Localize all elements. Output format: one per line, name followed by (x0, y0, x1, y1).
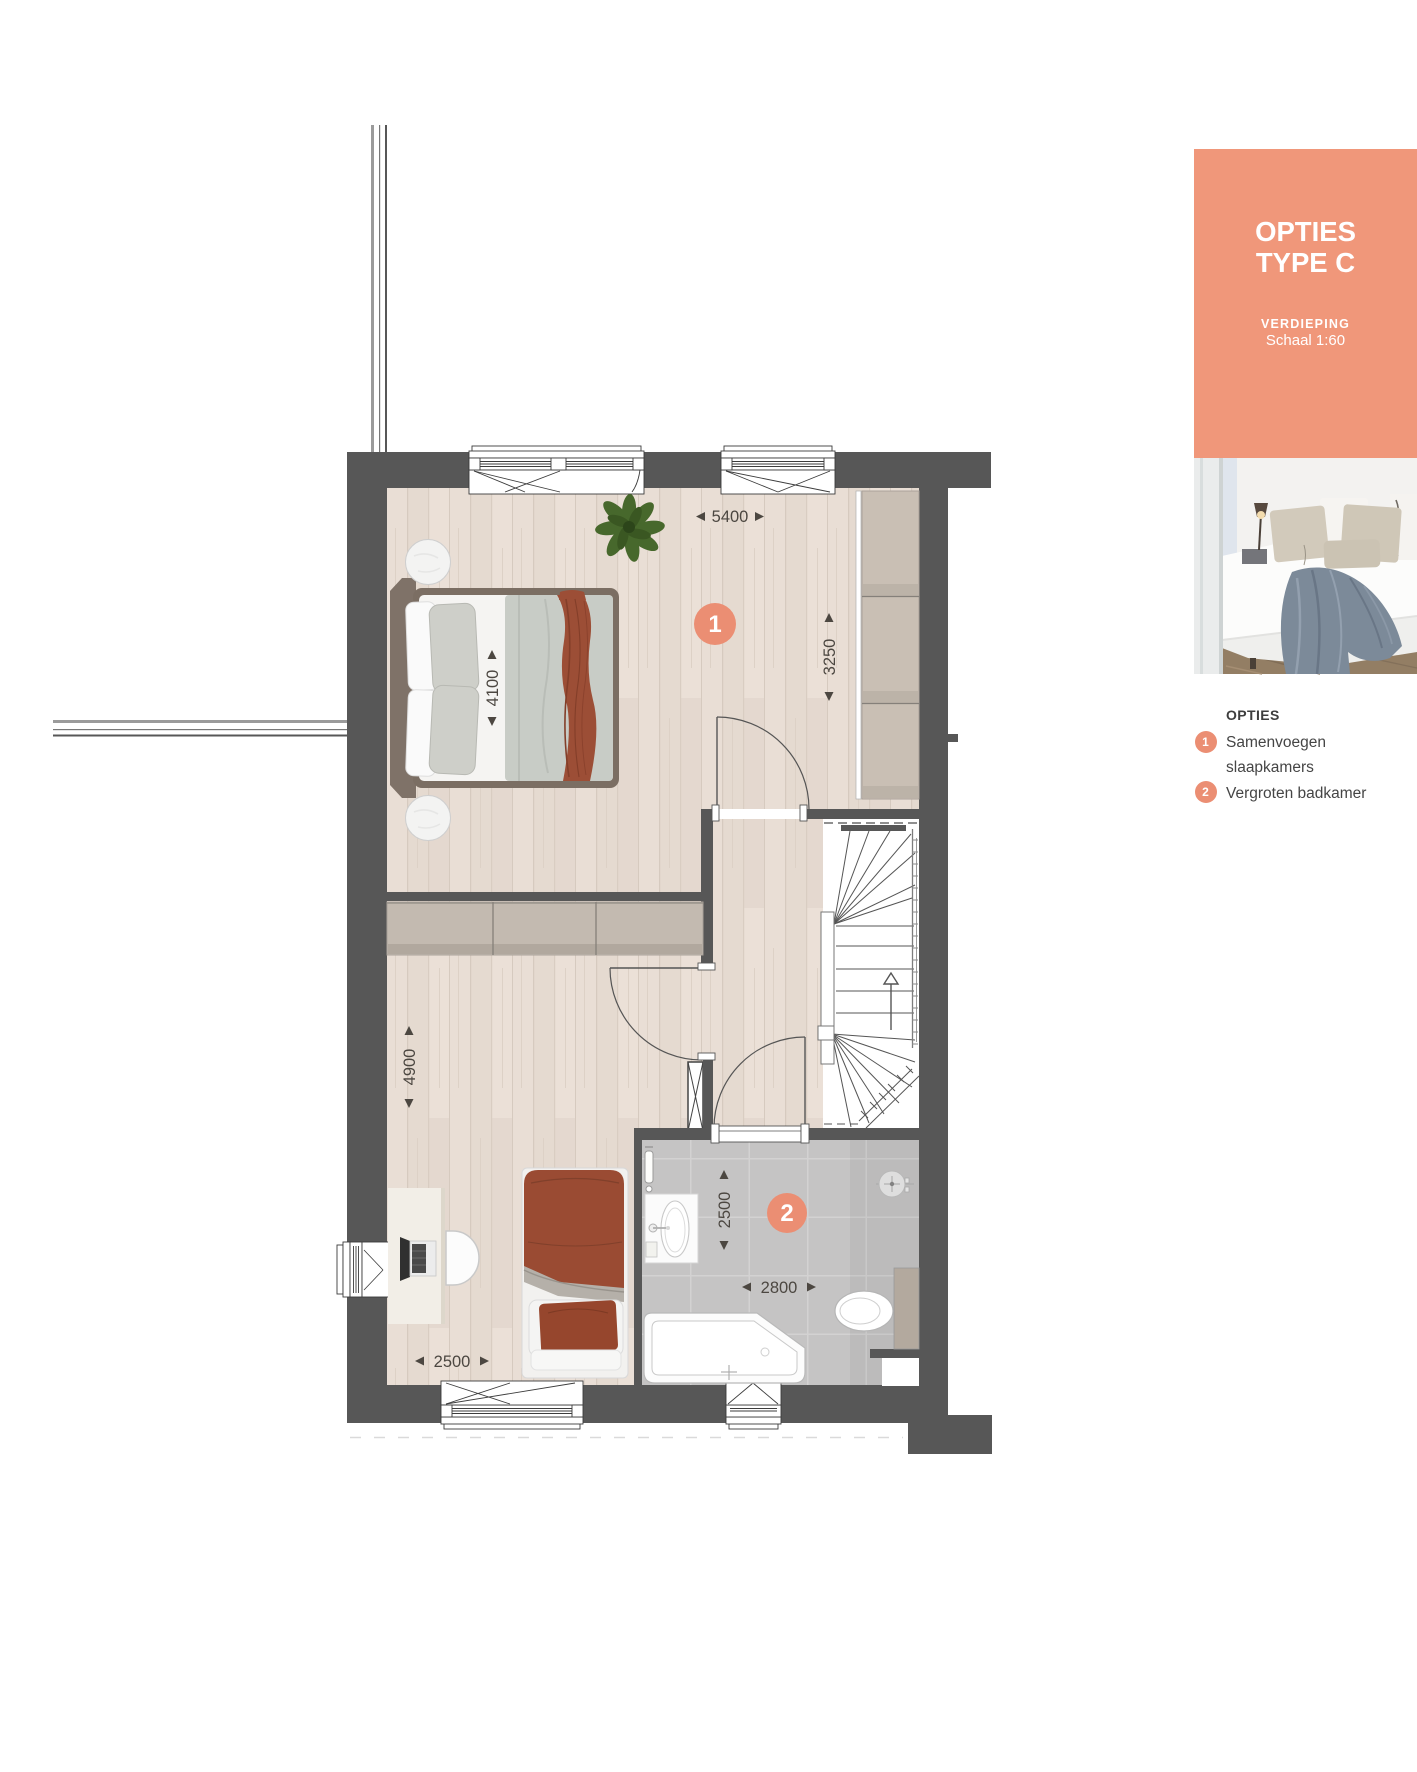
svg-text:2500: 2500 (434, 1353, 471, 1371)
svg-text:1: 1 (708, 611, 721, 638)
svg-text:2500: 2500 (716, 1192, 734, 1229)
svg-text:3250: 3250 (821, 639, 839, 676)
svg-text:4900: 4900 (401, 1049, 419, 1086)
svg-text:4100: 4100 (484, 670, 502, 707)
svg-text:5400: 5400 (712, 508, 749, 526)
svg-text:2: 2 (780, 1200, 793, 1227)
svg-text:2800: 2800 (761, 1279, 798, 1297)
